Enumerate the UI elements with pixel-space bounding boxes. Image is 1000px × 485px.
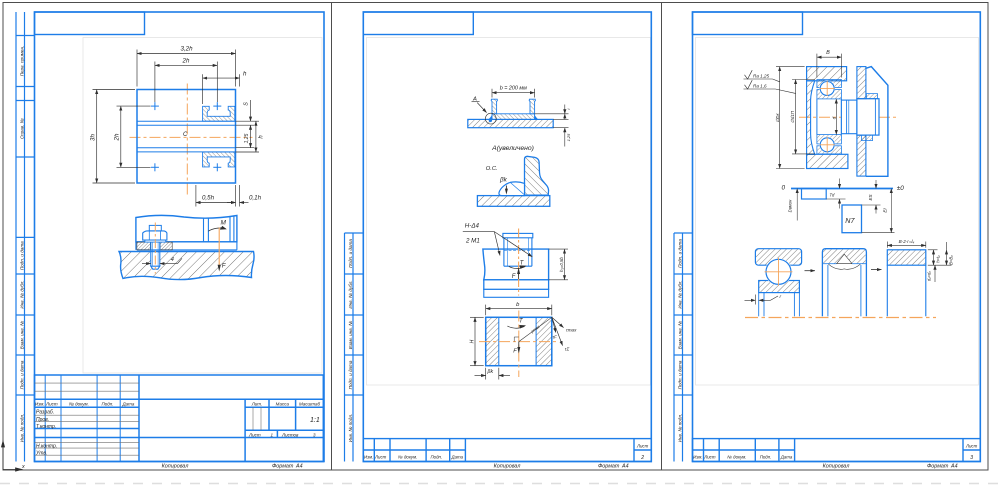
svg-text:О.С.: О.С. — [486, 166, 498, 172]
svg-text:№ докум.: № докум. — [398, 455, 417, 460]
svg-text:Инв. № дубл.: Инв. № дубл. — [678, 280, 683, 308]
svg-text:h₁=0,5b: h₁=0,5b — [559, 257, 564, 272]
svg-text:d₁=d₀: d₁=d₀ — [927, 271, 932, 281]
svg-text:Инв. № подл.: Инв. № подл. — [20, 414, 25, 443]
svg-text:Разраб.: Разраб. — [36, 410, 54, 416]
svg-text:Формат: Формат — [272, 464, 294, 470]
svg-text:В-2·r=l₄: В-2·r=l₄ — [899, 239, 915, 244]
svg-text:Лист: Лист — [636, 444, 649, 449]
svg-text:1,25: 1,25 — [244, 133, 250, 143]
svg-text:h=t₂: h=t₂ — [935, 255, 940, 263]
svg-text:4: 4 — [171, 257, 174, 263]
svg-text:Изм.: Изм. — [35, 402, 45, 407]
svg-text:1:1: 1:1 — [310, 417, 320, 424]
svg-text:F: F — [512, 274, 516, 280]
svg-text:3,2h: 3,2h — [180, 46, 193, 53]
svg-text:№ докум.: № докум. — [69, 402, 89, 407]
svg-text:Подп. и дата: Подп. и дата — [678, 360, 683, 389]
svg-text:Дата: Дата — [451, 455, 464, 460]
svg-text:2h: 2h — [182, 58, 190, 65]
svg-text:Ra 1,25: Ra 1,25 — [753, 74, 770, 79]
svg-text:Масштаб: Масштаб — [299, 402, 320, 407]
svg-text:А4: А4 — [295, 464, 303, 470]
svg-text:3h: 3h — [90, 134, 97, 141]
svg-text:Лист: Лист — [374, 455, 387, 460]
svg-text:А4: А4 — [621, 464, 629, 470]
svg-text:τΣ: τΣ — [565, 347, 570, 352]
svg-text:EI: EI — [882, 208, 887, 213]
svg-text:Лист: Лист — [248, 432, 261, 437]
svg-text:Подп. и дата: Подп. и дата — [348, 239, 353, 268]
svg-text:2h: 2h — [114, 133, 121, 141]
svg-text:Изм.: Изм. — [364, 455, 373, 460]
svg-text:h: h — [243, 71, 247, 78]
svg-text:Подп.: Подп. — [431, 455, 443, 460]
svg-text:τF: τF — [553, 335, 558, 340]
svg-text:Подп.: Подп. — [760, 455, 772, 460]
svg-text:Дата: Дата — [122, 402, 135, 407]
svg-text:Взам. инв. №: Взам. инв. № — [348, 321, 353, 349]
svg-text:Лист: Лист — [703, 455, 716, 460]
svg-text:Пров.: Пров. — [36, 417, 49, 423]
svg-text:Изм.: Изм. — [693, 455, 702, 460]
svg-text:Подп.: Подп. — [102, 402, 114, 407]
svg-text:Н.контр.: Н.контр. — [36, 444, 57, 450]
svg-text:В: В — [826, 50, 830, 56]
svg-text:Формат: Формат — [598, 464, 620, 470]
svg-text:Dвмин: Dвмин — [788, 199, 793, 212]
svg-text:Лит.: Лит. — [251, 402, 263, 407]
svg-text:βk: βk — [487, 369, 494, 375]
svg-text:3: 3 — [970, 455, 973, 461]
svg-text:А: А — [472, 96, 477, 102]
svg-text:0,5h: 0,5h — [202, 195, 215, 202]
svg-text:1,25: 1,25 — [566, 133, 571, 142]
svg-text:Подп. и дата: Подп. и дата — [678, 239, 683, 268]
svg-text:0: 0 — [782, 184, 786, 191]
svg-text:x: x — [21, 464, 25, 470]
svg-text:Копировал: Копировал — [823, 464, 850, 470]
svg-text:Утв.: Утв. — [36, 451, 47, 457]
svg-text:Формат: Формат — [927, 464, 949, 470]
svg-text:Справ. №: Справ. № — [20, 118, 25, 139]
svg-text:F: F — [513, 348, 517, 354]
svg-text:2 М1: 2 М1 — [465, 237, 480, 244]
svg-text:Инв. № дубл.: Инв. № дубл. — [20, 280, 25, 308]
svg-text:Т.контр.: Т.контр. — [36, 424, 56, 430]
svg-text:Перв. примен.: Перв. примен. — [20, 46, 25, 77]
svg-text:Лист: Лист — [965, 444, 978, 449]
svg-text:Копировал: Копировал — [162, 464, 189, 470]
svg-text:∅Dк: ∅Dк — [775, 113, 780, 123]
svg-text:2: 2 — [640, 455, 644, 461]
svg-text:0,1h: 0,1h — [249, 195, 262, 202]
svg-text:Ra 1,6: Ra 1,6 — [753, 84, 767, 89]
svg-text:±0: ±0 — [897, 185, 905, 192]
svg-text:А4: А4 — [950, 464, 958, 470]
svg-text:Лист: Лист — [45, 402, 58, 407]
svg-text:ES: ES — [868, 194, 873, 200]
svg-text:Масса: Масса — [276, 402, 290, 407]
svg-text:Взам. инв. №: Взам. инв. № — [678, 321, 683, 349]
svg-text:Подп. и дата: Подп. и дата — [348, 360, 353, 389]
svg-text:τmax: τmax — [566, 328, 577, 333]
svg-text:А(увеличено): А(увеличено) — [491, 145, 534, 152]
svg-text:В=В₀: В=В₀ — [949, 255, 954, 265]
svg-text:Подп. и дата: Подп. и дата — [20, 360, 25, 389]
svg-text:N7: N7 — [845, 216, 855, 225]
svg-text:b = 200 мм: b = 200 мм — [500, 86, 527, 92]
svg-text:Инв. № дубл.: Инв. № дубл. — [348, 280, 353, 308]
svg-text:С: С — [183, 132, 188, 138]
svg-text:Взам. инв. №: Взам. инв. № — [20, 321, 25, 349]
svg-text:М: М — [221, 220, 227, 227]
svg-text:Дата: Дата — [780, 455, 793, 460]
svg-text:Инв. № подл.: Инв. № подл. — [678, 414, 683, 443]
svg-text:Листов: Листов — [281, 432, 299, 437]
svg-text:∅d1П: ∅d1П — [790, 110, 795, 123]
svg-text:βk: βk — [499, 176, 508, 183]
svg-text:Подп. и дата: Подп. и дата — [20, 241, 25, 270]
svg-text:Инв. № подл.: Инв. № подл. — [348, 414, 353, 443]
svg-text:Копировал: Копировал — [494, 464, 521, 470]
svg-text:Н-Δ4: Н-Δ4 — [465, 222, 480, 229]
svg-text:№ докум.: № докум. — [727, 455, 746, 460]
svg-text:Td: Td — [830, 192, 836, 197]
svg-text:Н: Н — [470, 339, 476, 343]
svg-text:S: S — [243, 102, 249, 106]
